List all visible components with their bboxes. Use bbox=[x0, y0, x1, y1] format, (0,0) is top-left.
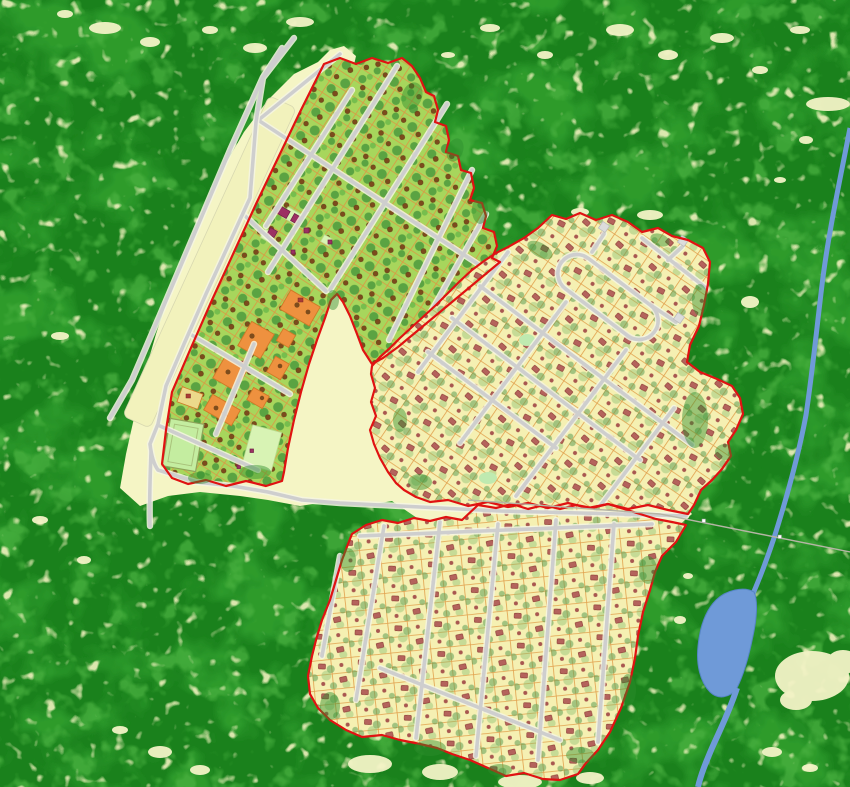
map-canvas bbox=[0, 0, 850, 787]
map-stage bbox=[0, 0, 850, 787]
power-pole bbox=[778, 535, 782, 539]
power-pole bbox=[702, 519, 706, 523]
